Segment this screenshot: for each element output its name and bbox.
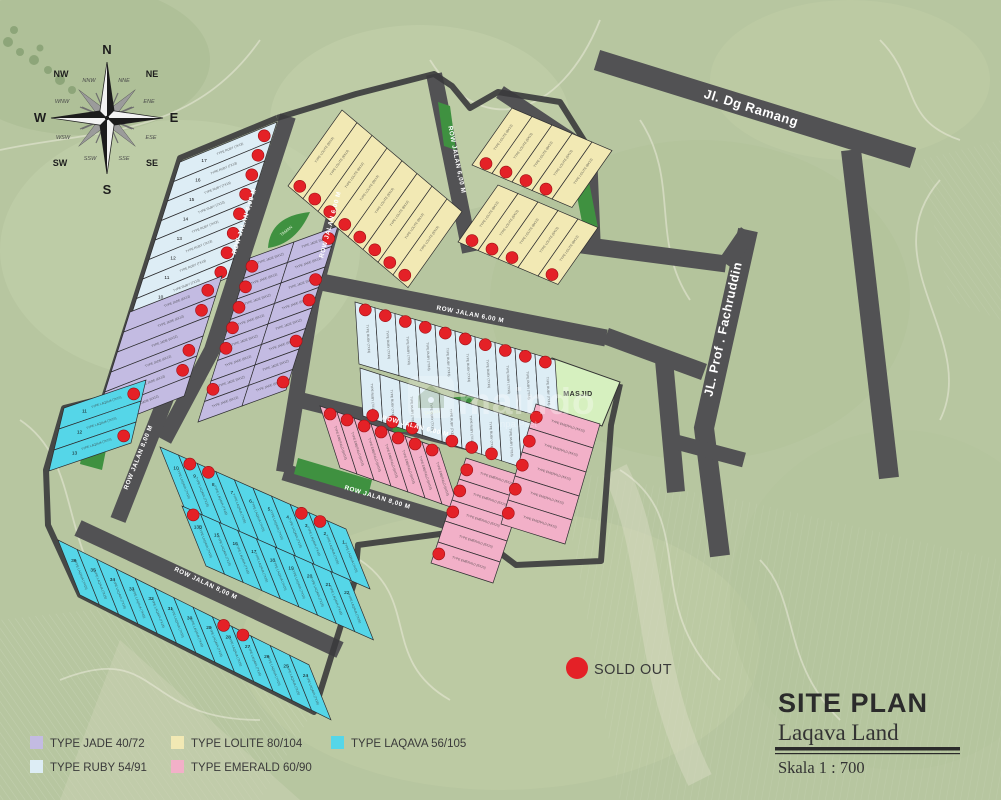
- sold-out-dot: [314, 516, 326, 528]
- compass-label-wnw: WNW: [55, 99, 70, 105]
- title-rule-thin: [775, 753, 960, 754]
- plot-number: 11: [164, 275, 169, 281]
- compass-label-nne: NNE: [118, 78, 130, 84]
- compass-label-se: SE: [146, 158, 158, 168]
- sold-out-dot: [341, 414, 353, 426]
- plot-number: 3: [305, 523, 308, 529]
- site-plan-page: TYPE RUBY (7X13)17TYPE RUBY (7X13)16TYPE…: [0, 0, 1001, 800]
- compass-center: [105, 116, 109, 120]
- page-title: SITE PLAN: [778, 688, 928, 718]
- sold-out-dot: [540, 183, 552, 195]
- plot-number: 12: [170, 256, 176, 262]
- sold-out-dot: [187, 509, 199, 521]
- plot-number: 31: [168, 606, 174, 612]
- road-stub-south: [664, 360, 676, 492]
- plot-number: 29: [206, 625, 212, 631]
- plot-number: 34: [110, 577, 116, 583]
- compass-label-sw: SW: [53, 158, 68, 168]
- sold-out-dot: [207, 383, 219, 395]
- sold-out-dot: [184, 458, 196, 470]
- site-plan-canvas: TYPE RUBY (7X13)17TYPE RUBY (7X13)16TYPE…: [0, 0, 1001, 800]
- legend-label-emerald: TYPE EMERALD 60/90: [191, 762, 312, 774]
- scale-label: Skala 1 : 700: [778, 758, 865, 777]
- compass-label-wsw: WSW: [56, 135, 71, 141]
- sold-out-dot: [433, 548, 445, 560]
- sold-out-dot: [294, 180, 306, 192]
- watermark-text: maindo: [458, 381, 596, 422]
- legend-label-laqava: TYPE LAQAVA 56/105: [351, 738, 466, 750]
- sold-out-dot: [520, 175, 532, 187]
- sold-out-dot: [454, 485, 466, 497]
- sold-out-dot: [461, 464, 473, 476]
- sold-out-dot: [379, 310, 391, 322]
- plot-number: 18: [270, 557, 276, 563]
- sold-out-dot: [233, 301, 245, 313]
- sold-out-label: SOLD OUT: [594, 662, 672, 678]
- sold-out-dot: [367, 409, 379, 421]
- plot-number: 11: [82, 408, 87, 414]
- sold-out-dot: [218, 619, 230, 631]
- plot-number: 5: [268, 507, 271, 513]
- sold-out-dot: [509, 483, 521, 495]
- sold-out-dot: [237, 629, 249, 641]
- compass-label-ene: ENE: [143, 99, 155, 105]
- sold-out-dot: [310, 274, 322, 286]
- sold-out-dot: [486, 243, 498, 255]
- sold-out-dot: [546, 269, 558, 281]
- plot-number: 17: [201, 158, 207, 164]
- sold-out-dot: [359, 304, 371, 316]
- legend-label-jade: TYPE JADE 40/72: [50, 738, 145, 750]
- legend-swatch-ruby: [30, 760, 43, 773]
- title-rule-thick: [775, 747, 960, 751]
- compass-label-n: N: [102, 42, 111, 57]
- legend-label-ruby: TYPE RUBY 54/91: [50, 762, 147, 774]
- plot-number: 20: [307, 574, 313, 580]
- sold-out-dot: [177, 364, 189, 376]
- legend-swatch-laqava: [331, 736, 344, 749]
- legend-swatch-lolite: [171, 736, 184, 749]
- sold-out-dot: [118, 430, 130, 442]
- plot-number: 7: [230, 490, 233, 496]
- sold-out-dot: [246, 260, 258, 272]
- watermark-subtext: npa Pilet: [500, 419, 537, 430]
- sold-out-dot: [384, 257, 396, 269]
- compass-label-ese: ESE: [145, 135, 156, 141]
- plot-number: 2: [323, 531, 326, 537]
- plot-number: 32: [148, 596, 154, 602]
- sold-out-dot: [539, 356, 551, 368]
- sold-out-dot: [196, 304, 208, 316]
- sold-out-dot: [399, 316, 411, 328]
- sold-out-dot: [339, 218, 351, 230]
- plot-number: 12: [77, 429, 83, 435]
- legend-swatch-emerald: [171, 760, 184, 773]
- sold-out-dot: [258, 130, 270, 142]
- sold-out-dot: [324, 408, 336, 420]
- sold-out-dot: [246, 169, 258, 181]
- sold-out-dot: [202, 284, 214, 296]
- sold-out-dot: [426, 444, 438, 456]
- sold-out-dot: [409, 438, 421, 450]
- legend-label-lolite: TYPE LOLITE 80/104: [191, 738, 303, 750]
- plot-number: 15: [214, 533, 220, 539]
- plot-number: 36: [71, 558, 77, 564]
- compass-label-sse: SSE: [118, 156, 129, 162]
- sold-out-dot: [220, 342, 232, 354]
- sold-out-dot: [183, 344, 195, 356]
- plot-number: 13: [72, 450, 78, 456]
- sold-out-dot: [375, 426, 387, 438]
- sold-out-dot: [240, 281, 252, 293]
- watermark-house-window: [428, 397, 434, 403]
- legend-swatch-jade: [30, 736, 43, 749]
- compass-label-ne: NE: [146, 69, 159, 79]
- sold-out-dot: [506, 252, 518, 264]
- plot-number: 1: [342, 539, 345, 545]
- sold-out-dot: [502, 507, 514, 519]
- plot-number: 27: [245, 644, 251, 650]
- sold-out-dot: [277, 376, 289, 388]
- sold-out-dot: [486, 448, 498, 460]
- compass-label-ssw: SSW: [84, 156, 97, 162]
- plot-number: 28: [226, 635, 232, 641]
- sold-out-dot: [354, 231, 366, 243]
- sold-out-dot: [303, 294, 315, 306]
- plot-number: 17: [251, 549, 257, 555]
- compass-label-w: W: [34, 110, 47, 125]
- sold-out-dot: [128, 388, 140, 400]
- sold-out-dot: [447, 506, 459, 518]
- project-name: Laqava Land: [778, 720, 899, 745]
- compass-label-nw: NW: [54, 69, 69, 79]
- sold-out-dot: [369, 244, 381, 256]
- plot-number: 4: [286, 515, 289, 521]
- sold-out-dot: [466, 235, 478, 247]
- sold-out-dot: [399, 269, 411, 281]
- plot-number: 21: [326, 582, 332, 588]
- sold-out-dot: [252, 149, 264, 161]
- sold-out-dot: [500, 166, 512, 178]
- sold-out-dot: [309, 193, 321, 205]
- sold-out-dot: [290, 335, 302, 347]
- sold-out-dot: [523, 435, 535, 447]
- plot-number: 8: [212, 482, 215, 488]
- plot-number: 10: [173, 466, 179, 472]
- compass-label-nnw: NNW: [82, 78, 96, 84]
- plot-number: 16: [195, 178, 201, 184]
- plot-number: 26: [264, 654, 270, 660]
- plot-number: 24: [303, 673, 309, 679]
- plot-number: 25: [283, 663, 289, 669]
- sold-out-dot: [202, 466, 214, 478]
- plot-number: 33: [129, 587, 135, 593]
- sold-out-dot: [439, 327, 451, 339]
- sold-out-dot: [358, 420, 370, 432]
- plot-number: 13B: [194, 525, 203, 531]
- plot-number: 22: [344, 590, 350, 596]
- sold-out-dot: [516, 459, 528, 471]
- sold-out-dot: [392, 432, 404, 444]
- compass-label-s: S: [103, 182, 112, 197]
- plot-number: 35: [90, 567, 96, 573]
- sold-out-dot: [499, 345, 511, 357]
- plot-number: 19: [288, 566, 294, 572]
- plot-number: 6: [249, 498, 252, 504]
- plot-number: 14: [183, 217, 189, 223]
- sold-out-dot: [480, 158, 492, 170]
- sold-out-dot: [479, 339, 491, 351]
- sold-out-dot: [227, 322, 239, 334]
- sold-out-dot: [519, 350, 531, 362]
- plot-number: 13: [177, 236, 183, 242]
- sold-out-dot: [419, 321, 431, 333]
- plot-number: 16: [233, 541, 239, 547]
- compass-label-e: E: [170, 110, 179, 125]
- sold-out-dot: [466, 441, 478, 453]
- plot-number: 30: [187, 615, 193, 621]
- sold-out-dot: [295, 507, 307, 519]
- plot-number: 9: [193, 474, 196, 480]
- sold-out-dot: [459, 333, 471, 345]
- plot-number: 15: [189, 197, 195, 203]
- sold-out-dot: [566, 657, 588, 679]
